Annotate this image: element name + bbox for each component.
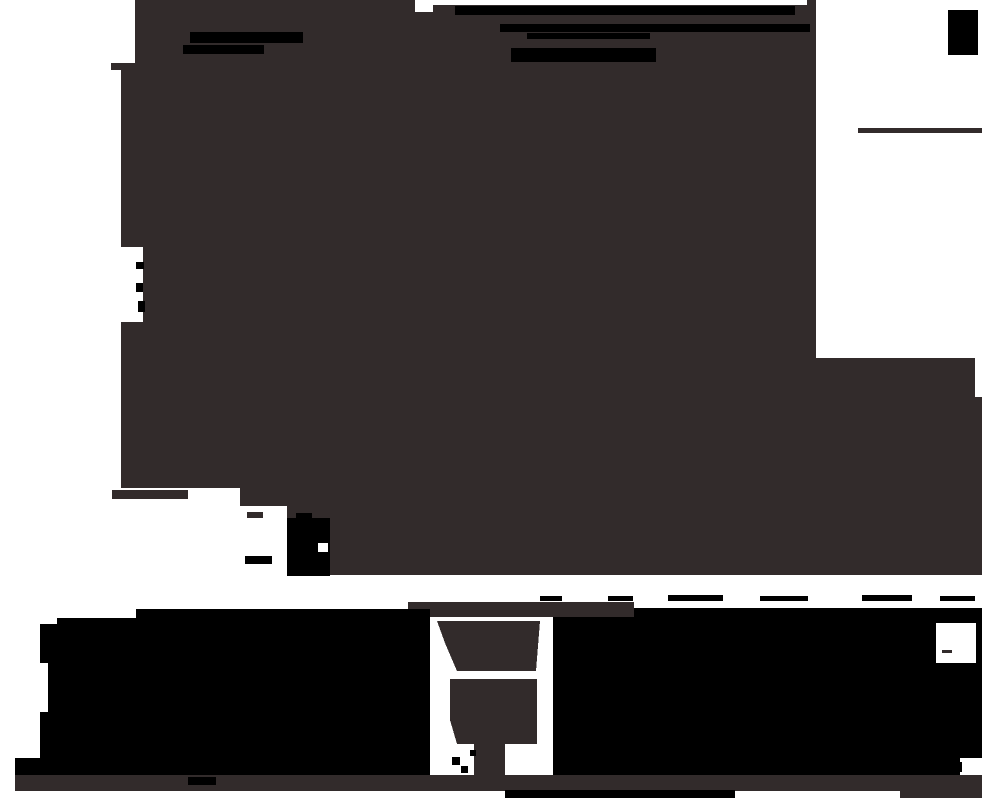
bottom-right-top-notch [936,623,976,663]
mid-blob-white-notch [318,543,328,552]
base-band-black-bar [188,777,216,785]
bottom-brown-top-band [408,602,634,617]
base-band [15,775,982,798]
band-dash-2 [608,596,633,601]
mid-blob-spur [296,513,312,522]
edge-step-dash [247,512,263,518]
band-dash-1 [540,596,562,601]
band-dash-5 [862,595,912,601]
top-stripe-left-2 [183,45,264,54]
bottom-right-corner-notch [960,758,982,775]
edge-foot [112,490,188,499]
band-dash-4 [760,596,808,601]
left-notch-dot-3 [138,301,145,312]
bottom-right-notch-dash [942,650,952,653]
funnel-zig-2 [461,766,468,773]
funnel-zig-3 [470,750,476,756]
band-dash-3 [668,595,723,601]
funnel-body [450,679,537,775]
top-stripe-left-1 [190,32,303,43]
left-notch-dot-2 [136,283,143,292]
bottom-right-block [553,608,982,775]
left-notch-dot-1 [136,262,144,269]
funnel-zig-1 [452,757,460,765]
top-white-notch [415,0,433,12]
top-stripe-right-4 [511,48,656,62]
top-white-sliver [430,0,807,5]
main-dark-mass [111,0,982,575]
top-stripe-right-3 [527,33,650,39]
top-stripe-right-1 [455,6,795,15]
bottom-left-step-notch [40,663,48,712]
mid-blob-dash [245,556,272,564]
bottom-edge-black-bar [505,790,735,798]
bottom-left-block [15,609,430,775]
white-column-line [858,128,982,133]
band-dash-6 [940,596,975,601]
top-right-patch [948,10,978,55]
funnel-trapezoid [437,621,540,671]
bottom-right-corner-mark [952,762,962,772]
top-stripe-right-2 [500,24,810,32]
silhouette-canvas [0,0,982,798]
silhouette-image [0,0,982,798]
